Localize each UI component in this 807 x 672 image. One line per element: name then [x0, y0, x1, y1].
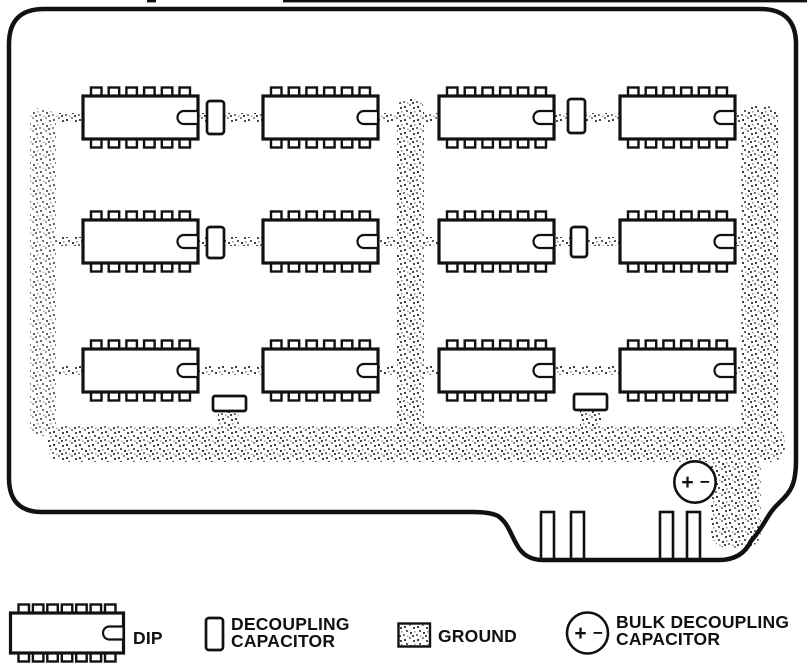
dip-notch: [358, 235, 378, 248]
dip-notch: [178, 235, 199, 248]
legend-ground-swatch: [399, 624, 431, 647]
dip-notch: [534, 111, 555, 124]
dip-ic: [439, 212, 554, 272]
dip-symbol: [11, 605, 124, 662]
legend: DIP DECOUPLING CAPACITOR GROUND + − BULK…: [11, 605, 790, 662]
ground-trace: [552, 366, 622, 375]
dip-ic: [439, 88, 554, 148]
edge-connector-finger: [541, 512, 554, 559]
edge-connector-finger: [571, 512, 584, 559]
bulk-minus-sign: −: [700, 473, 710, 492]
legend-dip-symbol: [11, 605, 124, 662]
dip-ic: [620, 341, 735, 401]
ground-trace: [377, 113, 399, 122]
decoupling-capacitor: [574, 394, 607, 410]
ground-strip-right: [741, 106, 778, 456]
dip-notch: [103, 627, 123, 640]
decoupling-capacitor: [207, 227, 224, 258]
legend-bulk-label-line2: CAPACITOR: [616, 629, 720, 649]
dip-ic: [263, 88, 378, 148]
edge-connector-finger: [687, 512, 700, 559]
legend-decoupling-label-line2: CAPACITOR: [231, 631, 335, 651]
ground-band-bottom: [48, 426, 785, 462]
bulk-plus-sign: +: [681, 471, 693, 494]
dip-notch: [715, 235, 736, 248]
legend-bulk-plus-sign: +: [574, 622, 586, 645]
ground-strip-left: [30, 108, 56, 436]
top-edge-artifact: [147, 0, 807, 2]
ground-plane: [30, 99, 785, 548]
dip-ic: [620, 212, 735, 272]
legend-dip-label: DIP: [133, 628, 163, 648]
dip-ic: [83, 212, 198, 272]
dip-notch: [178, 111, 199, 124]
dip-ic: [83, 88, 198, 148]
ground-blob-corner: [711, 450, 761, 548]
dip-ic: [620, 88, 735, 148]
dip-ic: [263, 341, 378, 401]
decoupling-capacitor: [213, 396, 246, 411]
ground-trace: [552, 113, 622, 122]
legend-decoupling-capacitor-symbol: [206, 618, 223, 650]
dip-ic: [263, 212, 378, 272]
dip-ic: [83, 341, 198, 401]
pcb-decoupling-diagram: +− DIP DECOUPLING CAPACITOR GROUND + − B…: [0, 0, 807, 672]
dip-notch: [358, 364, 378, 377]
dip-notch: [715, 364, 736, 377]
decoupling-capacitor: [568, 99, 585, 133]
dip-notch: [358, 111, 378, 124]
dip-notch: [715, 111, 736, 124]
dip-notch: [178, 364, 199, 377]
ground-trace: [196, 366, 264, 375]
edge-connector-finger: [660, 512, 673, 559]
legend-ground-label: GROUND: [438, 626, 517, 646]
ground-trace: [377, 237, 399, 246]
dip-notch: [534, 235, 555, 248]
decoupling-capacitor: [571, 227, 587, 257]
legend-bulk-minus-sign: −: [593, 624, 603, 643]
ground-trace: [377, 366, 399, 375]
diagram-canvas: +− DIP DECOUPLING CAPACITOR GROUND + − B…: [0, 0, 807, 672]
ground-strip-middle: [397, 99, 424, 451]
decoupling-capacitor: [207, 101, 224, 134]
dip-notch: [534, 364, 555, 377]
bulk-decoupling-capacitor: +−: [674, 461, 715, 502]
dip-ic: [439, 341, 554, 401]
